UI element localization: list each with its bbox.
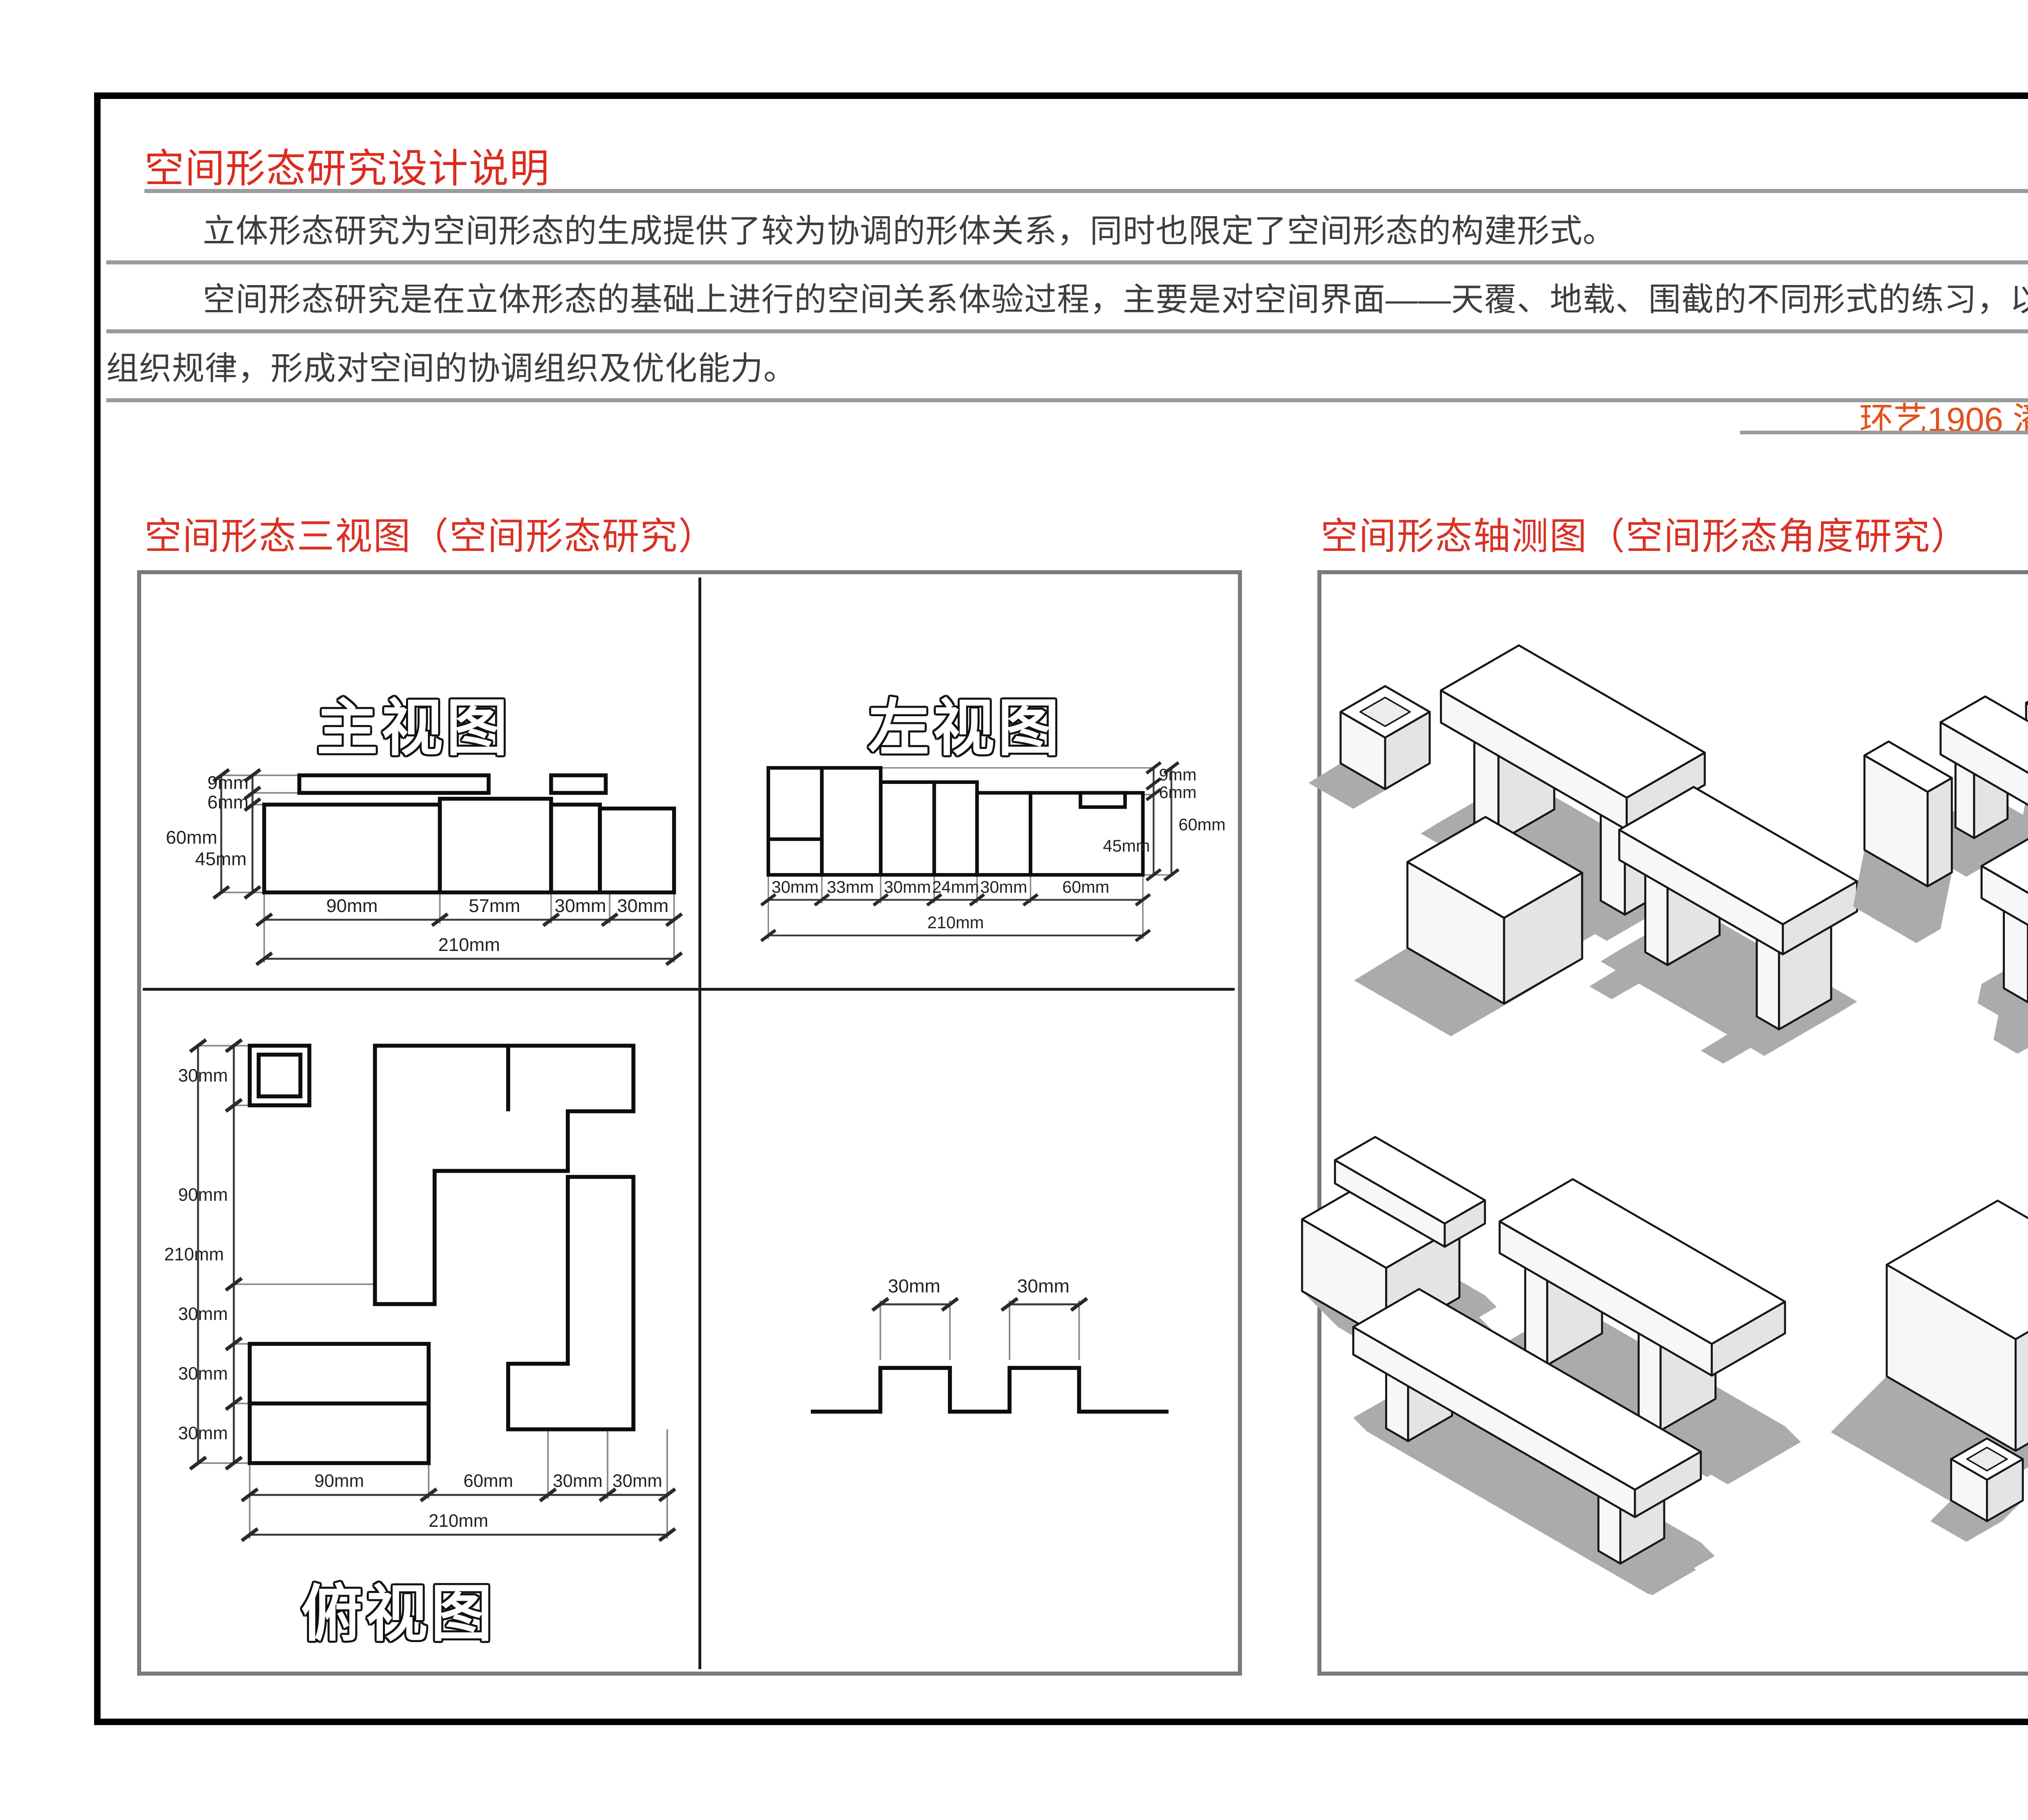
dim-label: 30mm: [178, 1364, 228, 1384]
section-heading-axonometric: 空间形态轴测图（空间形态角度研究）: [1321, 506, 1969, 560]
panel-horizontal-divider: [143, 988, 1235, 991]
dim-label: 90mm: [326, 895, 378, 916]
dim-label: 30mm: [554, 895, 606, 916]
dim-label: 30mm: [612, 1471, 662, 1491]
dim-label: 30mm: [1017, 1275, 1070, 1296]
paragraph-1: 立体形态研究为空间形态的生成提供了较为协调的形体关系，同时也限定了空间形态的构建…: [203, 205, 1616, 252]
axonometric-view-2: [1862, 657, 2028, 1168]
dim-label: 90mm: [178, 1185, 228, 1205]
dim-label: 60mm: [166, 827, 217, 848]
paragraph-2: 空间形态研究是在立体形态的基础上进行的空间关系体验过程，主要是对空间界面——天覆…: [203, 273, 2028, 320]
dim-label-total: 210mm: [927, 913, 984, 932]
rule-line-1: [106, 260, 2028, 264]
dim-label: 30mm: [178, 1423, 228, 1443]
dim-label: 33mm: [827, 877, 874, 896]
dim-label: 9mm: [207, 773, 249, 793]
dim-label: 30mm: [980, 877, 1027, 896]
left-view-drawing: 9mm 6mm 60mm 45mm 30mm 33mm 30mm 24mm 30…: [715, 689, 1232, 959]
dim-label: 45mm: [1103, 836, 1150, 855]
dim-label: 9mm: [1159, 765, 1197, 784]
dim-label: 60mm: [1179, 815, 1226, 834]
dim-label: 30mm: [178, 1304, 228, 1324]
dim-label: 57mm: [469, 895, 520, 916]
student-info-underline: [1740, 431, 2028, 434]
title-underline: [144, 189, 2028, 193]
dim-label: 90mm: [314, 1471, 364, 1491]
dim-label: 60mm: [464, 1471, 513, 1491]
dim-label-total: 210mm: [429, 1511, 488, 1531]
paragraph-3: 组织规律，形成对空间的协调组织及优化能力。: [106, 342, 796, 389]
dim-label-total: 210mm: [164, 1245, 224, 1264]
front-view-drawing: 9mm 6mm 60mm 45mm 90mm 57mm 30mm 30mm 21…: [174, 689, 694, 984]
page-title: 空间形态研究设计说明: [144, 136, 550, 194]
rule-line-2: [106, 329, 2028, 333]
dim-label: 6mm: [1159, 783, 1197, 802]
dim-label: 30mm: [884, 877, 931, 896]
axonometric-view-1: [1330, 608, 1862, 1119]
dim-label: 30mm: [178, 1066, 228, 1086]
section-heading-three-views: 空间形态三视图（空间形态研究）: [144, 506, 716, 560]
panel-vertical-divider: [698, 577, 701, 1669]
dim-label: 30mm: [771, 877, 819, 896]
dim-label: 30mm: [617, 895, 668, 916]
dim-label: 24mm: [932, 877, 979, 896]
dim-label: 30mm: [888, 1275, 940, 1296]
dim-label: 45mm: [195, 848, 247, 869]
axonometric-view-4: [1850, 1148, 2028, 1640]
dim-label-total: 210mm: [438, 934, 500, 955]
top-view-title: 俯视图: [301, 1564, 496, 1653]
top-view-drawing: 30mm 90mm 30mm 30mm 30mm 210mm 90mm 60mm…: [162, 1014, 687, 1547]
section-profile-sketch: 30mm 30mm: [791, 1233, 1188, 1471]
dim-label: 30mm: [553, 1471, 603, 1491]
axonometric-view-3: [1330, 1168, 1854, 1671]
dim-label: 6mm: [207, 792, 249, 813]
dim-label: 60mm: [1062, 877, 1109, 896]
